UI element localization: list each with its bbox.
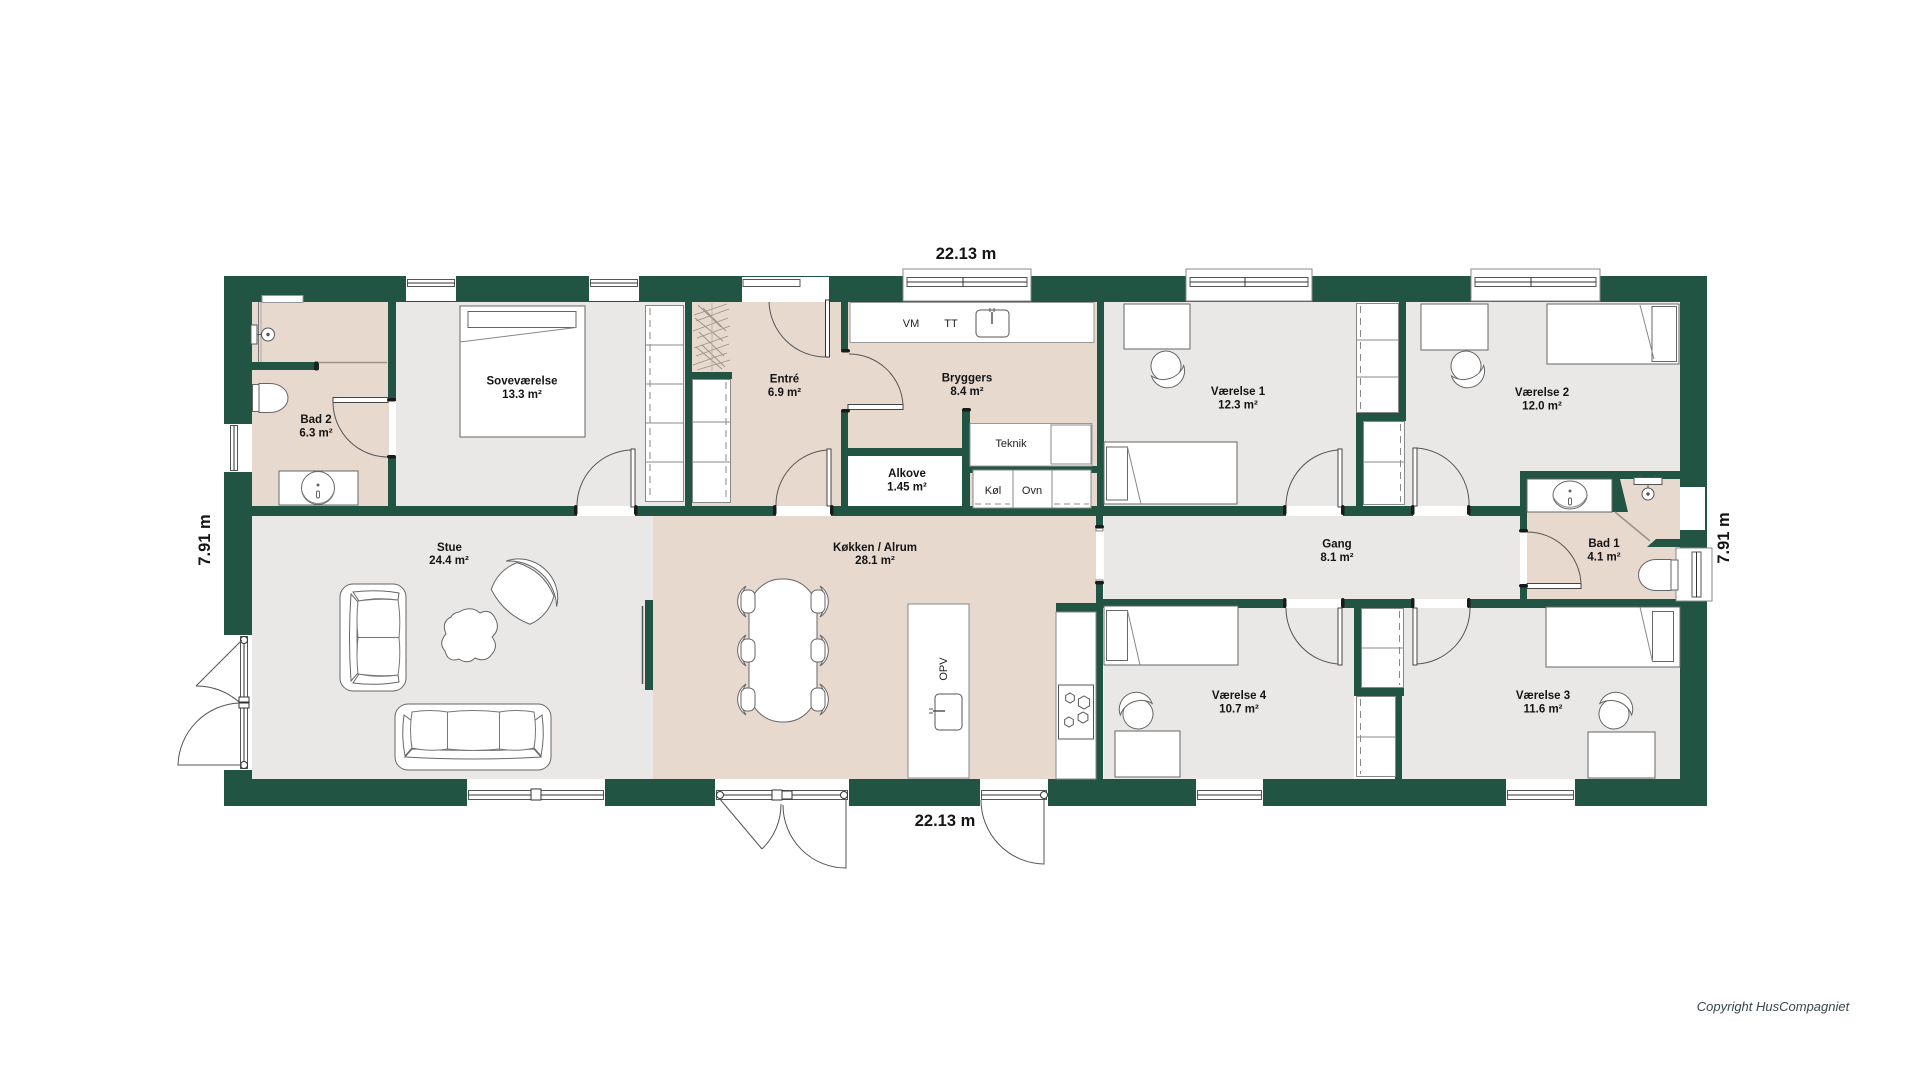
svg-text:24.4 m²: 24.4 m² xyxy=(429,555,469,567)
svg-text:Værelse 2: Værelse 2 xyxy=(1515,387,1569,399)
svg-text:7.91 m: 7.91 m xyxy=(196,514,214,565)
svg-text:11.6 m²: 11.6 m² xyxy=(1524,704,1563,716)
svg-text:Teknik: Teknik xyxy=(995,438,1027,450)
svg-text:12.3 m²: 12.3 m² xyxy=(1218,400,1258,412)
svg-text:Køkken / Alrum: Køkken / Alrum xyxy=(833,542,917,554)
svg-text:Bad 1: Bad 1 xyxy=(1588,538,1620,550)
svg-text:Bryggers: Bryggers xyxy=(942,373,993,385)
svg-text:Køl: Køl xyxy=(985,485,1002,497)
svg-text:6.9 m²: 6.9 m² xyxy=(768,387,801,399)
svg-text:22.13 m: 22.13 m xyxy=(936,245,997,263)
svg-text:Værelse 4: Værelse 4 xyxy=(1212,690,1267,702)
svg-text:8.1 m²: 8.1 m² xyxy=(1320,552,1353,564)
svg-text:Bad 2: Bad 2 xyxy=(300,414,331,426)
svg-text:22.13 m: 22.13 m xyxy=(915,812,976,830)
svg-text:12.0 m²: 12.0 m² xyxy=(1522,401,1562,413)
svg-text:Ovn: Ovn xyxy=(1022,485,1042,497)
svg-text:TT: TT xyxy=(944,318,958,330)
svg-text:10.7 m²: 10.7 m² xyxy=(1219,704,1259,716)
svg-text:Entré: Entré xyxy=(770,374,799,386)
svg-text:Værelse 1: Værelse 1 xyxy=(1211,386,1266,398)
svg-text:8.4 m²: 8.4 m² xyxy=(950,386,983,398)
svg-text:Gang: Gang xyxy=(1322,539,1351,551)
svg-text:6.3 m²: 6.3 m² xyxy=(299,428,332,440)
svg-text:Alkove: Alkove xyxy=(888,468,926,480)
svg-text:28.1 m²: 28.1 m² xyxy=(855,555,895,567)
svg-text:4.1 m²: 4.1 m² xyxy=(1587,552,1620,564)
svg-text:Soveværelse: Soveværelse xyxy=(487,376,558,388)
svg-text:Værelse 3: Værelse 3 xyxy=(1516,690,1570,702)
svg-text:1.45 m²: 1.45 m² xyxy=(887,482,927,494)
svg-text:VM: VM xyxy=(903,318,920,330)
svg-text:Stue: Stue xyxy=(437,542,462,554)
svg-text:13.3 m²: 13.3 m² xyxy=(502,389,542,401)
svg-text:7.91 m: 7.91 m xyxy=(1715,512,1733,563)
svg-text:Copyright HusCompagniet: Copyright HusCompagniet xyxy=(1697,999,1851,1014)
svg-text:OPV: OPV xyxy=(938,657,950,681)
